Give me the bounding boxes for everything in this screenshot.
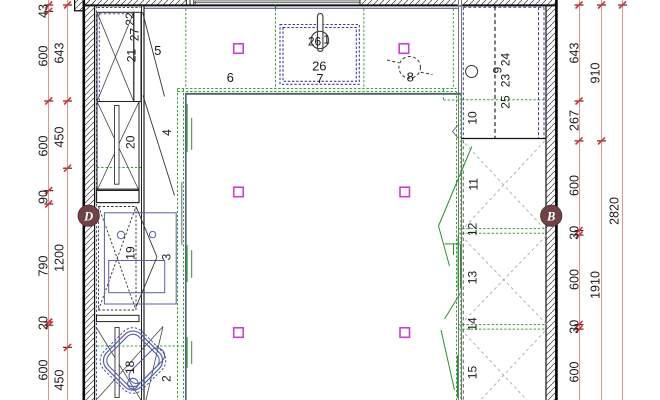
- svg-text:1910: 1910: [588, 271, 602, 299]
- svg-text:12: 12: [465, 222, 479, 236]
- svg-text:450: 450: [52, 127, 66, 148]
- svg-text:10: 10: [466, 111, 480, 125]
- svg-text:13: 13: [466, 271, 480, 285]
- svg-text:600: 600: [37, 360, 51, 381]
- svg-text:20: 20: [123, 135, 137, 149]
- svg-text:18: 18: [123, 360, 137, 374]
- svg-text:600: 600: [37, 46, 51, 67]
- svg-text:643: 643: [568, 43, 582, 64]
- svg-text:600: 600: [568, 269, 582, 290]
- svg-text:30: 30: [568, 226, 582, 240]
- svg-text:25: 25: [499, 95, 513, 109]
- svg-text:15: 15: [466, 366, 480, 380]
- svg-text:8: 8: [407, 70, 414, 85]
- svg-text:20: 20: [37, 316, 51, 330]
- svg-text:1: 1: [323, 33, 330, 47]
- svg-text:19: 19: [124, 246, 138, 260]
- svg-text:23: 23: [499, 74, 513, 88]
- svg-text:790: 790: [37, 256, 51, 277]
- svg-text:14: 14: [466, 317, 480, 331]
- svg-text:643: 643: [52, 43, 66, 64]
- svg-text:600: 600: [568, 175, 582, 196]
- svg-text:5: 5: [154, 43, 161, 58]
- svg-text:43: 43: [37, 4, 51, 18]
- svg-text:22: 22: [123, 12, 137, 26]
- svg-text:21: 21: [125, 49, 139, 63]
- svg-text:30: 30: [568, 320, 582, 334]
- svg-text:24: 24: [499, 53, 513, 67]
- svg-text:90: 90: [37, 190, 51, 204]
- svg-text:27: 27: [128, 28, 142, 42]
- svg-text:910: 910: [588, 63, 602, 84]
- svg-text:D: D: [83, 209, 93, 223]
- svg-text:3: 3: [159, 253, 173, 260]
- svg-text:267: 267: [568, 110, 582, 131]
- svg-text:11: 11: [466, 178, 480, 191]
- svg-text:26: 26: [308, 35, 322, 49]
- svg-text:450: 450: [52, 370, 66, 391]
- svg-text:1200: 1200: [52, 244, 66, 272]
- svg-text:2820: 2820: [607, 197, 621, 225]
- svg-text:600: 600: [568, 362, 582, 383]
- svg-text:7: 7: [316, 71, 323, 86]
- svg-text:9: 9: [491, 67, 505, 74]
- svg-text:2: 2: [160, 375, 174, 382]
- svg-text:B: B: [546, 209, 555, 223]
- svg-text:6: 6: [227, 70, 234, 85]
- svg-text:4: 4: [160, 129, 174, 136]
- svg-text:600: 600: [37, 136, 51, 157]
